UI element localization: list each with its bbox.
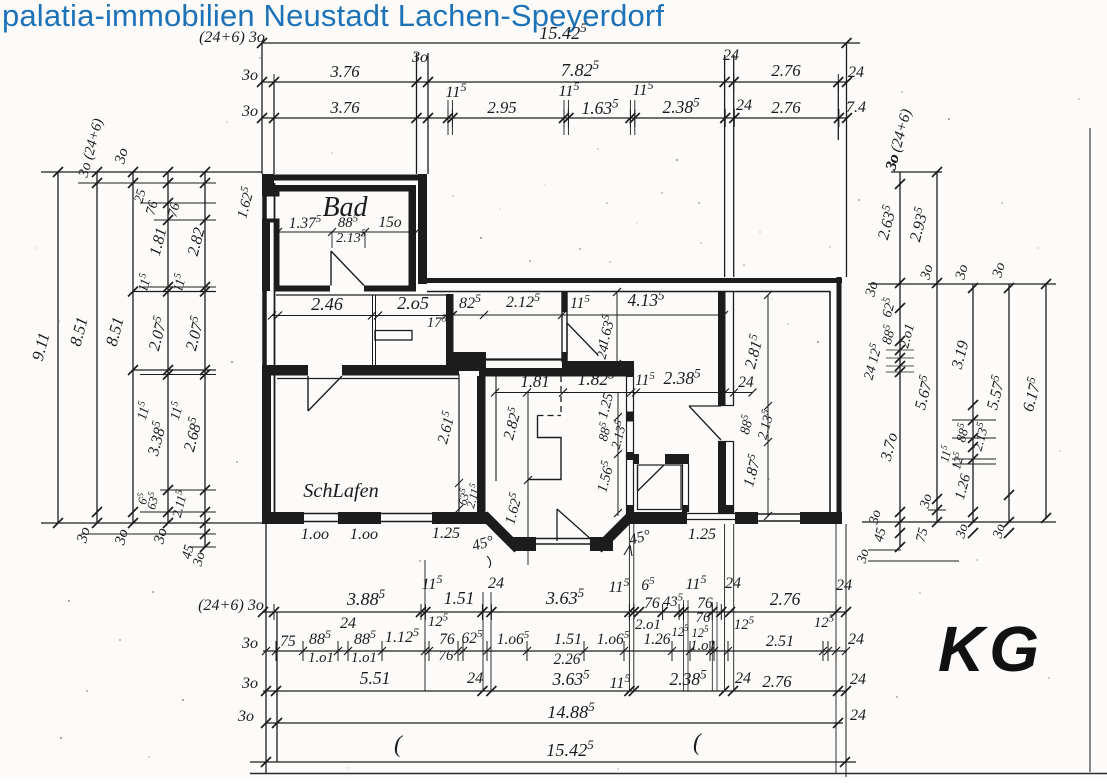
- svg-text:1.o1: 1.o1: [351, 650, 377, 666]
- svg-text:15.425: 15.425: [546, 737, 594, 760]
- svg-text:76: 76: [439, 631, 455, 648]
- svg-text:1.oo: 1.oo: [301, 526, 329, 543]
- svg-text:24: 24: [836, 577, 852, 594]
- svg-text:(24+6) 3o: (24+6) 3o: [199, 29, 265, 46]
- svg-text:3o: 3o: [411, 49, 428, 66]
- svg-text:5.51: 5.51: [360, 668, 391, 688]
- svg-text:7.4: 7.4: [846, 99, 866, 116]
- svg-text:2.26: 2.26: [554, 651, 581, 668]
- svg-text:76: 76: [644, 595, 660, 612]
- svg-text:2.76: 2.76: [771, 98, 801, 117]
- svg-text:3o: 3o: [237, 708, 254, 725]
- svg-text:1.51: 1.51: [554, 631, 582, 648]
- svg-text:2.51: 2.51: [766, 633, 794, 650]
- svg-text:1.oo: 1.oo: [350, 526, 378, 543]
- svg-text:2.76: 2.76: [771, 61, 801, 80]
- svg-text:24: 24: [735, 670, 751, 687]
- svg-text:24: 24: [850, 671, 866, 688]
- svg-text:3o: 3o: [241, 103, 258, 120]
- svg-text:24: 24: [488, 575, 504, 592]
- svg-text:24: 24: [736, 97, 752, 114]
- svg-text:3o: 3o: [241, 635, 258, 652]
- svg-text:(24+6) 3o: (24+6) 3o: [198, 597, 264, 614]
- svg-text:1.25: 1.25: [432, 525, 460, 542]
- svg-text:3o: 3o: [241, 675, 258, 692]
- svg-text:14.885: 14.885: [547, 699, 595, 722]
- svg-text:3o: 3o: [241, 67, 258, 84]
- svg-text:24: 24: [848, 64, 864, 81]
- svg-text:75: 75: [280, 633, 296, 650]
- svg-text:2.76: 2.76: [762, 672, 792, 691]
- svg-text:24: 24: [738, 374, 754, 391]
- svg-text:1.51: 1.51: [444, 588, 475, 608]
- svg-text:2.76: 2.76: [770, 589, 801, 609]
- svg-text:24: 24: [723, 47, 739, 64]
- svg-text:1.o1: 1.o1: [308, 650, 334, 666]
- svg-text:3.76: 3.76: [329, 62, 360, 81]
- svg-text:24: 24: [850, 707, 866, 724]
- svg-text:3.76: 3.76: [329, 98, 360, 117]
- svg-text:2.o5: 2.o5: [397, 293, 429, 313]
- svg-text:24: 24: [340, 615, 356, 632]
- svg-text:2.95: 2.95: [487, 98, 516, 117]
- svg-text:1.26: 1.26: [644, 631, 671, 648]
- svg-text:2.46: 2.46: [311, 294, 343, 314]
- svg-text:15o: 15o: [378, 214, 401, 231]
- svg-text:1.25: 1.25: [688, 526, 716, 543]
- svg-text:24: 24: [467, 670, 483, 687]
- svg-text:15.425: 15.425: [539, 20, 587, 43]
- svg-text:24: 24: [848, 631, 864, 648]
- svg-text:76: 76: [439, 648, 454, 664]
- svg-text:24: 24: [725, 575, 741, 592]
- svg-text:SchLafen: SchLafen: [303, 480, 378, 502]
- svg-text:1.81: 1.81: [520, 372, 549, 391]
- svg-text:KG: KG: [938, 613, 1044, 685]
